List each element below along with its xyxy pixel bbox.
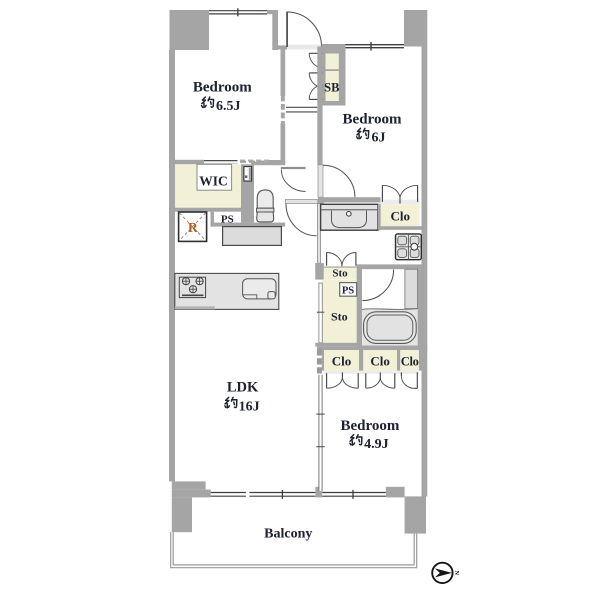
svg-text:Bedroom: Bedroom [343, 112, 402, 128]
svg-text:Bedroom: Bedroom [193, 79, 252, 95]
svg-text:N: N [453, 571, 459, 576]
svg-text:Balcony: Balcony [264, 526, 312, 541]
svg-text:Clo: Clo [370, 353, 390, 368]
svg-text:PS: PS [342, 285, 354, 296]
svg-text:Bedroom: Bedroom [340, 418, 399, 434]
svg-text:Sto: Sto [331, 310, 348, 324]
svg-text:6.5J: 6.5J [216, 99, 241, 114]
svg-text:6J: 6J [372, 131, 386, 146]
svg-text:PS: PS [221, 213, 234, 225]
svg-text:Clo: Clo [332, 353, 352, 368]
svg-text:SB: SB [324, 81, 339, 95]
svg-text:Clo: Clo [401, 354, 419, 368]
svg-text:4.9J: 4.9J [364, 437, 389, 452]
svg-text:16J: 16J [239, 400, 260, 415]
svg-text:R: R [188, 220, 198, 235]
svg-text:Sto: Sto [332, 268, 348, 280]
svg-text:Clo: Clo [390, 208, 410, 223]
svg-text:WIC: WIC [199, 173, 228, 188]
svg-text:LDK: LDK [227, 380, 259, 396]
